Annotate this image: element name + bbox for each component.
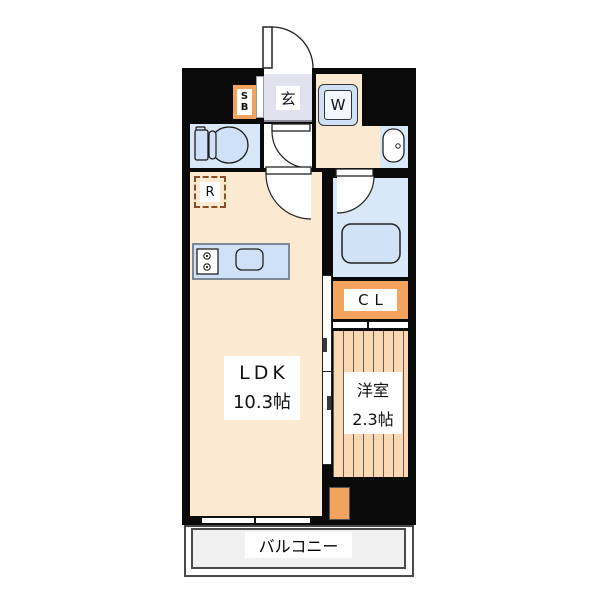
closet: CL xyxy=(333,281,408,319)
washing-machine-space: W xyxy=(318,84,358,126)
western-room-name: 洋室 xyxy=(357,377,389,401)
orange-pillar-element xyxy=(329,487,350,520)
corridor-floor xyxy=(264,124,312,168)
toilet-room xyxy=(190,124,260,168)
western-room-size: 2.3帖 xyxy=(352,406,393,430)
shoe-box: SB xyxy=(233,85,256,119)
refrigerator-space: R xyxy=(194,176,226,208)
balcony-sliding-window xyxy=(202,516,310,525)
balcony: バルコニー xyxy=(184,525,414,577)
washroom-floor-extension xyxy=(362,126,380,168)
washing-machine-label: W xyxy=(324,90,352,120)
entrance-door-swing-arc xyxy=(272,27,313,68)
entrance-label: 玄 xyxy=(276,86,300,110)
ldk-floor xyxy=(190,172,322,516)
entrance-door-leaf xyxy=(263,27,272,68)
floor-plan-canvas: CL R SB W バルコニー xyxy=(0,0,600,600)
ldk-western-room-sliding-partition xyxy=(322,275,332,465)
partition-handle xyxy=(323,338,327,352)
washbasin-nook xyxy=(380,126,408,168)
ldk-label: LDK 10.3帖 xyxy=(224,356,300,420)
window-tick xyxy=(254,518,256,523)
balcony-label: バルコニー xyxy=(245,532,353,558)
partition-panel-joint xyxy=(323,371,331,372)
closet-sliding-door xyxy=(333,321,408,329)
kitchen-counter xyxy=(192,243,290,280)
shoe-box-label: SB xyxy=(237,89,252,115)
bathroom xyxy=(333,178,408,277)
partition-handle xyxy=(327,396,331,410)
refrigerator-label: R xyxy=(200,182,220,202)
closet-door-tick xyxy=(367,320,369,330)
ldk-size: 10.3帖 xyxy=(233,388,291,414)
shoe-box-front xyxy=(256,76,264,118)
closet-label: CL xyxy=(344,289,397,311)
western-room-label: 洋室 2.3帖 xyxy=(344,372,402,434)
ldk-name: LDK xyxy=(235,362,289,384)
balcony-floor: バルコニー xyxy=(191,528,406,569)
